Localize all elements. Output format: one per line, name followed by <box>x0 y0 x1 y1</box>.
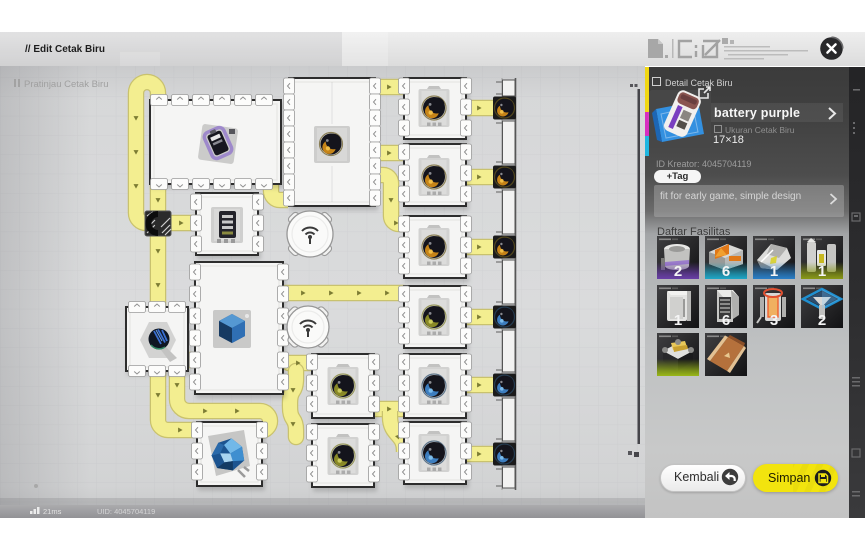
svg-text:1: 1 <box>818 263 826 279</box>
svg-text:1: 1 <box>674 312 682 328</box>
svg-text:1: 1 <box>770 263 778 279</box>
svg-text:21ms: 21ms <box>43 507 62 516</box>
svg-text:2: 2 <box>818 312 826 328</box>
svg-text:UID: 4045704119: UID: 4045704119 <box>97 507 155 516</box>
svg-text:2: 2 <box>674 263 682 279</box>
svg-text:3: 3 <box>770 312 778 328</box>
svg-text:6: 6 <box>722 263 730 279</box>
svg-text:6: 6 <box>722 312 730 328</box>
svg-text:Pratinjau Cetak Biru: Pratinjau Cetak Biru <box>24 79 108 90</box>
